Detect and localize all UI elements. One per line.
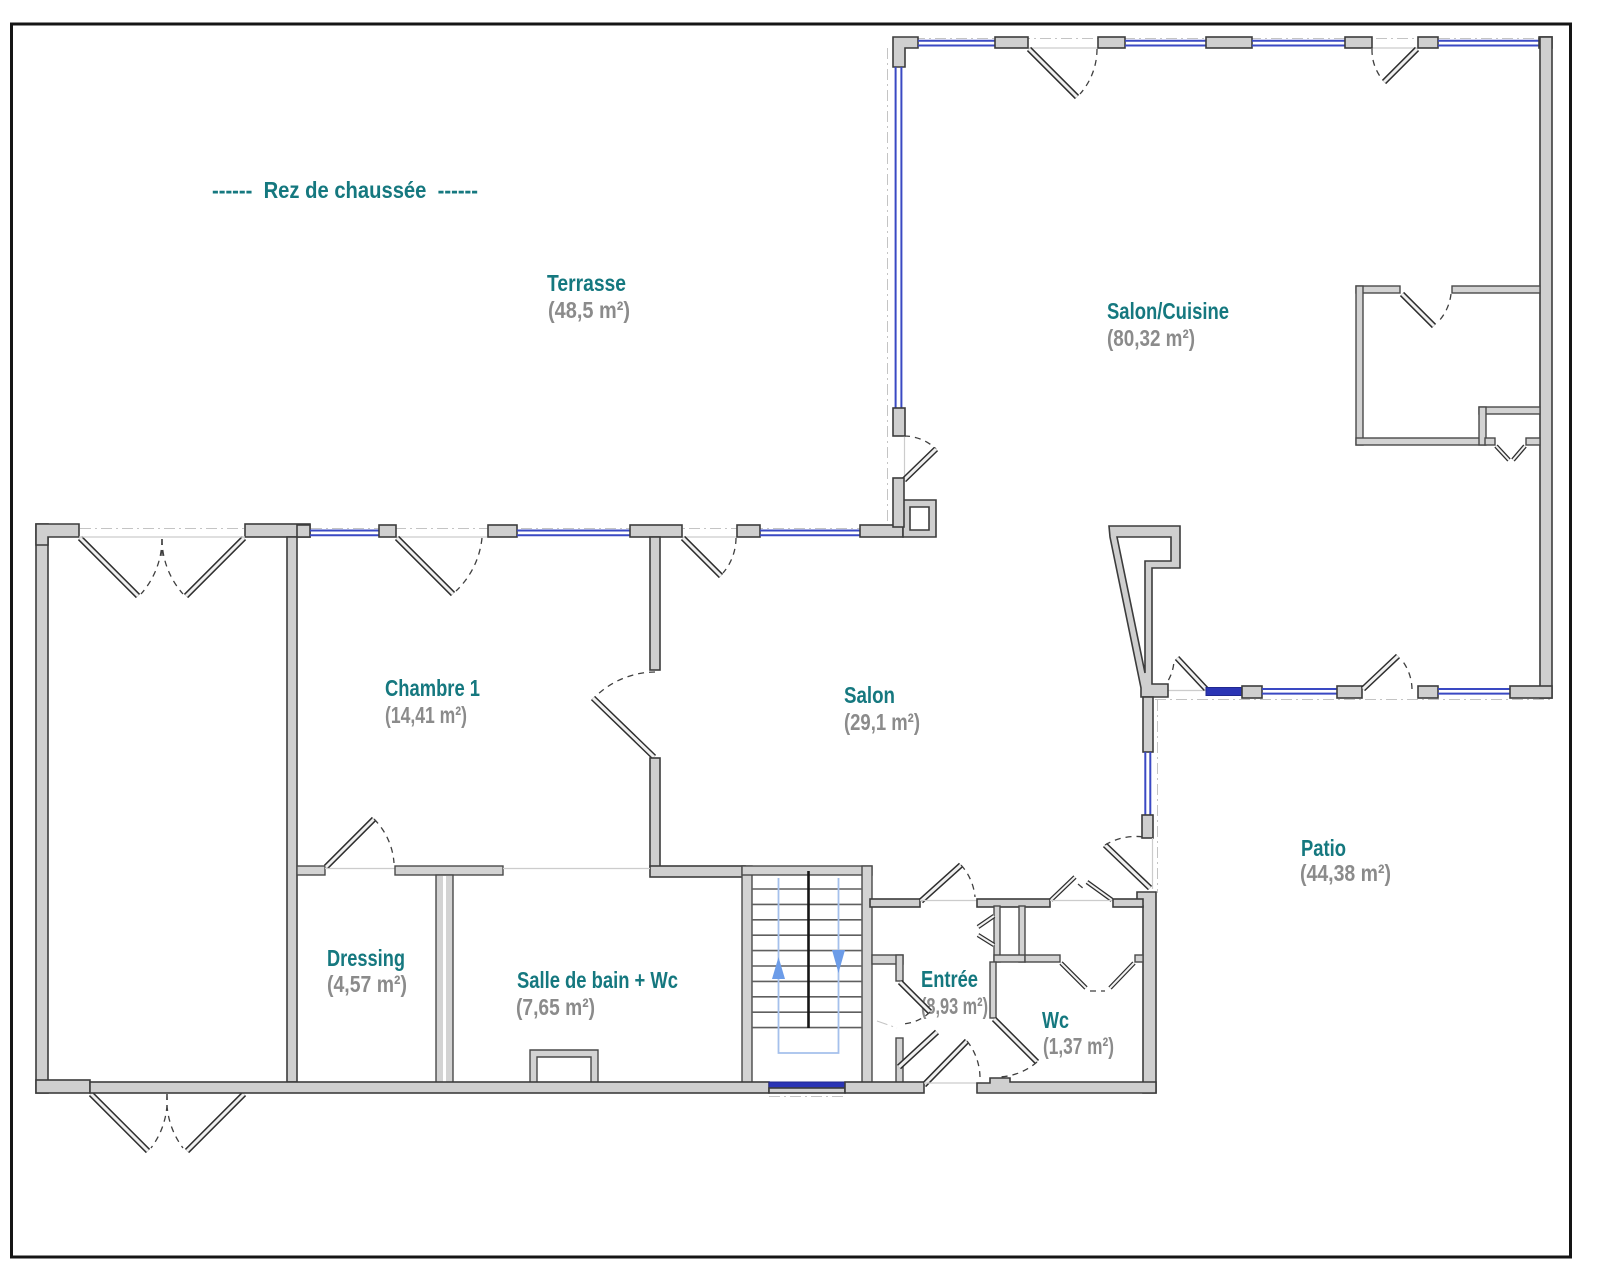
svg-text:Salon: Salon	[844, 682, 895, 708]
svg-text:(7,65 m²): (7,65 m²)	[516, 994, 595, 1020]
svg-text:(8,93 m²): (8,93 m²)	[921, 993, 988, 1019]
svg-text:Wc: Wc	[1042, 1007, 1069, 1033]
svg-text:(29,1 m²): (29,1 m²)	[844, 709, 920, 735]
svg-text:(80,32 m²): (80,32 m²)	[1107, 325, 1195, 351]
svg-text:Entrée: Entrée	[921, 966, 978, 992]
svg-text:Salon/Cuisine: Salon/Cuisine	[1107, 298, 1229, 324]
svg-text:Terrasse: Terrasse	[547, 270, 626, 296]
svg-text:Chambre 1: Chambre 1	[385, 675, 480, 701]
svg-text:(48,5 m²): (48,5 m²)	[548, 297, 630, 323]
svg-text:Patio: Patio	[1301, 835, 1346, 861]
svg-text:------ Rez de chaussée -----: ------ Rez de chaussée ------	[212, 177, 478, 203]
svg-text:(1,37 m²): (1,37 m²)	[1043, 1033, 1114, 1059]
svg-text:(44,38 m²): (44,38 m²)	[1300, 860, 1391, 886]
svg-text:(4,57 m²): (4,57 m²)	[327, 971, 407, 997]
svg-text:Dressing: Dressing	[327, 945, 405, 971]
svg-text:Salle de bain + Wc: Salle de bain + Wc	[517, 967, 678, 993]
svg-text:(14,41 m²): (14,41 m²)	[385, 702, 467, 728]
